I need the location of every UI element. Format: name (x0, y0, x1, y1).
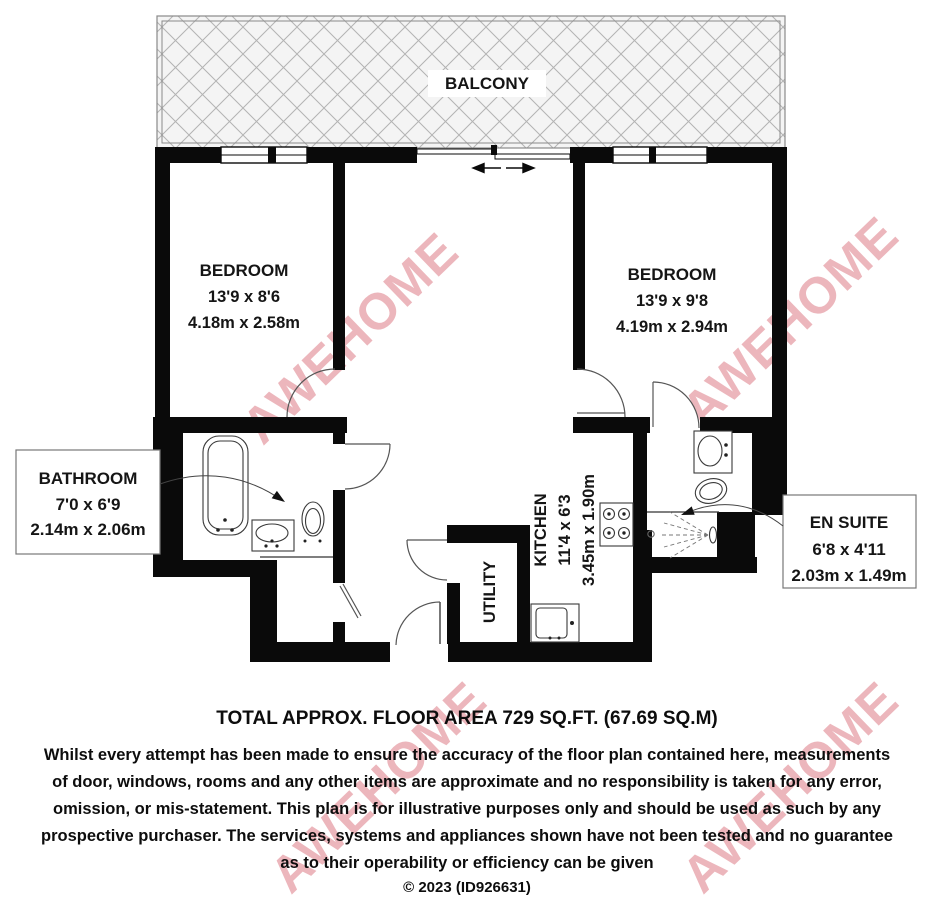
kitchen-sink-icon (531, 604, 579, 642)
bathroom-toilet-icon (302, 502, 324, 543)
bedroom-right-label: BEDROOM 13'9 x 9'8 4.19m x 2.94m (616, 265, 728, 336)
door-arc-ensuite (653, 382, 699, 428)
disclaimer-text: Whilst every attempt has been made to en… (0, 742, 934, 877)
balcony-label: BALCONY (445, 74, 530, 93)
svg-text:BATHROOM: BATHROOM (39, 469, 138, 488)
door-arc-bedroom-right (577, 369, 625, 417)
door-entrance (396, 602, 440, 645)
total-area-title: TOTAL APPROX. FLOOR AREA 729 SQ.FT. (67.… (0, 708, 934, 730)
door-hallway-angled (340, 584, 361, 618)
svg-text:2.03m x 1.49m: 2.03m x 1.49m (791, 566, 906, 585)
disclaimer-line: omission, or mis-statement. This plan is… (0, 796, 934, 823)
door-arc-utility (407, 540, 447, 580)
sliding-door (417, 145, 570, 173)
disclaimer-line: prospective purchaser. The services, sys… (0, 823, 934, 850)
door-arc-bedroom-left (287, 369, 335, 417)
svg-text:11'4 x 6'3: 11'4 x 6'3 (556, 494, 574, 565)
disclaimer-line: Whilst every attempt has been made to en… (0, 742, 934, 769)
svg-text:BEDROOM: BEDROOM (200, 261, 289, 280)
svg-text:6'8 x 4'11: 6'8 x 4'11 (812, 540, 885, 559)
shower-icon (648, 512, 717, 558)
svg-text:KITCHEN: KITCHEN (532, 493, 550, 566)
sliding-door-arrow (473, 164, 534, 173)
ensuite-sink-icon (694, 431, 732, 473)
door-arc-bathroom (345, 444, 390, 489)
hob-icon (600, 503, 633, 546)
svg-text:13'9 x 8'6: 13'9 x 8'6 (208, 288, 280, 306)
floor-plan: BALCONY (0, 0, 934, 696)
bathtub (203, 436, 248, 535)
svg-text:BEDROOM: BEDROOM (628, 265, 717, 284)
svg-text:4.18m x 2.58m: 4.18m x 2.58m (188, 314, 300, 332)
ensuite-label-box: EN SUITE 6'8 x 4'11 2.03m x 1.49m (681, 495, 916, 588)
svg-text:4.19m x 2.94m: 4.19m x 2.94m (616, 318, 728, 336)
svg-text:EN SUITE: EN SUITE (810, 513, 888, 532)
window-right (613, 147, 707, 163)
kitchen-label: KITCHEN 11'4 x 6'3 3.45m x 1.90m (532, 474, 598, 586)
bathroom-sink-icon (252, 520, 294, 551)
disclaimer-line: as to their operability or efficiency ca… (0, 850, 934, 877)
walls (153, 147, 787, 662)
disclaimer-line: of door, windows, rooms and any other it… (0, 769, 934, 796)
svg-text:13'9 x 9'8: 13'9 x 9'8 (636, 292, 708, 310)
svg-text:3.45m x 1.90m: 3.45m x 1.90m (580, 474, 598, 586)
bedroom-left-label: BEDROOM 13'9 x 8'6 4.18m x 2.58m (188, 261, 300, 332)
svg-text:2.14m x 2.06m: 2.14m x 2.06m (30, 520, 145, 539)
footer: TOTAL APPROX. FLOOR AREA 729 SQ.FT. (67.… (0, 700, 934, 896)
utility-label: UTILITY (481, 561, 499, 623)
svg-text:7'0 x 6'9: 7'0 x 6'9 (56, 495, 121, 514)
window-left (221, 147, 307, 163)
ensuite-toilet-icon (692, 475, 730, 508)
floorplan-page: AWEHOME AWEHOME AWEHOME AWEHOME BALCONY (0, 0, 934, 900)
copyright-text: © 2023 (ID926631) (0, 879, 934, 896)
balcony-area: BALCONY (157, 16, 785, 148)
